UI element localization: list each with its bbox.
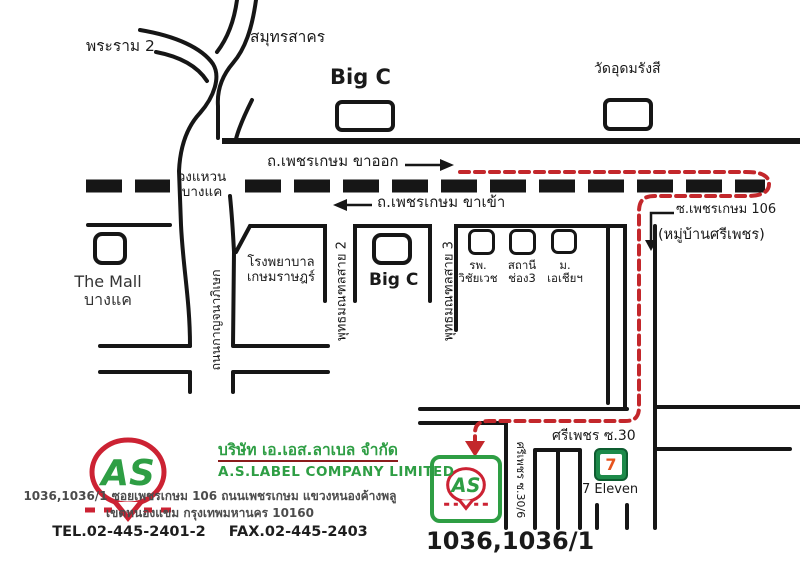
company-name-th: บริษัท เอ.เอส.ลาเบล จำกัด bbox=[218, 442, 398, 459]
sripetch30-label: ศรีเพชร ซ.30 bbox=[552, 429, 636, 445]
poi1-label-line2: วิชัยเวช bbox=[453, 272, 503, 285]
outbound-arrowhead bbox=[440, 159, 454, 171]
poi3-box bbox=[551, 229, 577, 254]
rama2-branch-inner bbox=[156, 52, 207, 81]
rama2-label: พระราม 2 bbox=[86, 38, 155, 55]
village-label: (หมู่บ้านศรีเพชร) bbox=[658, 227, 765, 243]
sai3-road-label: พุทธมณฑลสาย 3 bbox=[438, 241, 459, 341]
company-address-line2: เขตหนองแขม กรุงเทพมหานคร 10160 bbox=[14, 507, 406, 520]
the-mall-label-line2: บางแค bbox=[60, 291, 156, 309]
top-road-outer-edge bbox=[218, 0, 256, 138]
the-mall-label-line1: The Mall bbox=[60, 273, 156, 291]
bigc-lower-label: Big C bbox=[369, 271, 418, 290]
hospital-label: โรงพยาบาล เกษมราษฎร์ bbox=[236, 256, 326, 285]
wat-box bbox=[603, 98, 653, 131]
ringroad-label-line2: บางแค bbox=[158, 185, 246, 200]
poi2-label-line1: สถานี bbox=[502, 259, 542, 272]
poi2-label: สถานี ช่อง3 bbox=[502, 259, 542, 285]
poi3-label: ม. เอเชียฯ bbox=[542, 259, 588, 285]
soi106-right-edge bbox=[655, 226, 800, 528]
ringroad-label-line1: วงแหวน bbox=[158, 170, 246, 185]
company-fax: FAX.02-445-2403 bbox=[211, 524, 368, 540]
poi1-box bbox=[468, 229, 495, 255]
poi1-label-line1: รพ. bbox=[453, 259, 503, 272]
sripetch306-label: ศรีเพชร ซ.30/6 bbox=[512, 442, 530, 518]
kanchanaphisek-road-label: ถนนกาญจนาภิเษก bbox=[206, 269, 226, 370]
ringroad-label: วงแหวน บางแค bbox=[158, 170, 246, 200]
as-logo-text: AS bbox=[98, 453, 155, 494]
seven-eleven-logo: 7 bbox=[594, 448, 628, 481]
samut-sakhon-label: สมุทรสาคร bbox=[250, 29, 325, 46]
inbound-arrowhead bbox=[333, 199, 347, 211]
house-number-label: 1036,1036/1 bbox=[426, 528, 594, 555]
phetkasem-inbound-label: ถ.เพชรเกษม ขาเข้า bbox=[377, 194, 505, 211]
bigc-top-box bbox=[335, 100, 395, 132]
as-logo-tip bbox=[459, 500, 472, 508]
bigc-top-label: Big C bbox=[330, 66, 391, 90]
company-address-line1: 1036,1036/1 ซอยเพชรเกษม 106 ถนนเพชรเกษม … bbox=[14, 490, 406, 503]
company-tel: TEL.02-445-2401-2 bbox=[52, 524, 206, 540]
seven-glyph: 7 bbox=[600, 454, 622, 475]
phetkasem-outbound-label: ถ.เพชรเกษม ขาออก bbox=[267, 153, 399, 170]
company-name-en: A.S.LABEL COMPANY LIMITED bbox=[218, 465, 454, 480]
sai2-road-label: พุทธมณฑลสาย 2 bbox=[331, 241, 352, 341]
poi3-label-line2: เอเชียฯ bbox=[542, 272, 588, 285]
company-phone-line: TEL.02-445-2401-2 FAX.02-445-2403 bbox=[14, 524, 406, 540]
the-mall-label: The Mall บางแค bbox=[60, 273, 156, 309]
top-road-inner-edge bbox=[217, 0, 237, 52]
location-map: พระราม 2 สมุทรสาคร Big C วัดอุดมรังสี ถ.… bbox=[0, 0, 800, 570]
seven-eleven-label: 7 Eleven bbox=[582, 483, 638, 498]
company-name-th-text: บริษัท เอ.เอส.ลาเบล จำกัด bbox=[218, 441, 398, 462]
ramp-line bbox=[236, 100, 252, 139]
poi2-label-line2: ช่อง3 bbox=[502, 272, 542, 285]
poi2-box bbox=[509, 229, 536, 255]
soi106-label: ซ.เพชรเกษม 106 bbox=[676, 203, 776, 218]
hospital-label-line1: โรงพยาบาล bbox=[236, 256, 326, 271]
bigc-lower-box bbox=[372, 233, 412, 265]
hospital-label-line2: เกษมราษฎร์ bbox=[236, 271, 326, 286]
poi1-label: รพ. วิชัยเวช bbox=[453, 259, 503, 285]
wat-label: วัดอุดมรังสี bbox=[594, 62, 661, 78]
ringroad-right-edge bbox=[230, 196, 250, 392]
the-mall-box bbox=[93, 232, 127, 265]
poi3-label-line1: ม. bbox=[542, 259, 588, 272]
